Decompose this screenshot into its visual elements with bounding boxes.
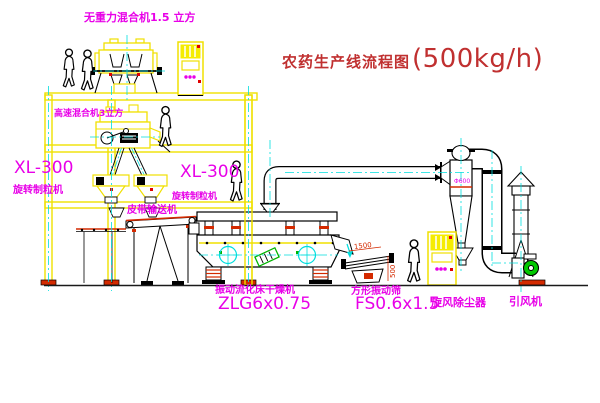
person-figure xyxy=(159,107,171,147)
person-figure xyxy=(408,240,420,282)
label-granulator-left-name: 旋转制粒机 xyxy=(13,186,63,196)
page-title: 农药生产线流程图 (500kg/h) xyxy=(282,44,543,74)
person-figure xyxy=(63,49,74,87)
flow-diagram-canvas: 无重力混合机1.5 立方 农药生产线流程图 (500kg/h) 高速混合机3立方… xyxy=(0,0,600,403)
label-dryer-model: ZLG6x0.75 xyxy=(218,296,311,313)
label-granulator-left-model: XL-300 xyxy=(14,160,73,177)
person-figure xyxy=(81,50,93,90)
label-cyclone: 旋风除尘器 xyxy=(431,297,486,308)
title-capacity-text: (500kg/h) xyxy=(412,44,543,74)
label-fan: 引风机 xyxy=(509,296,542,307)
label-granulator-right-model: XL-300 xyxy=(180,164,239,181)
label-gravity-mixer: 无重力混合机1.5 立方 xyxy=(84,12,195,23)
dim-screen-height: 500 xyxy=(390,265,397,278)
gravity-mixer-drawing xyxy=(90,39,162,93)
fluid-bed-dryer-drawing xyxy=(189,212,339,284)
label-belt-conveyor: 皮带输送机 xyxy=(127,206,177,216)
label-high-speed-mixer: 高速混合机3立方 xyxy=(54,110,123,119)
dim-cyclone-diameter: Φ600 xyxy=(454,179,470,185)
title-main-text: 农药生产线流程图 xyxy=(282,51,410,72)
cyclone-outlet-pipe-drawing xyxy=(466,159,516,263)
induced-draft-fan-drawing xyxy=(512,254,545,285)
belt-conveyor-drawing xyxy=(76,217,196,286)
control-cabinet-2-drawing xyxy=(428,232,456,285)
dryer-exhaust-duct-drawing xyxy=(260,160,452,212)
label-granulator-right-name: 旋转制粒机 xyxy=(172,193,217,202)
label-screen-model: FS0.6x1.5 xyxy=(355,296,439,313)
control-cabinet-1-drawing xyxy=(178,42,203,96)
